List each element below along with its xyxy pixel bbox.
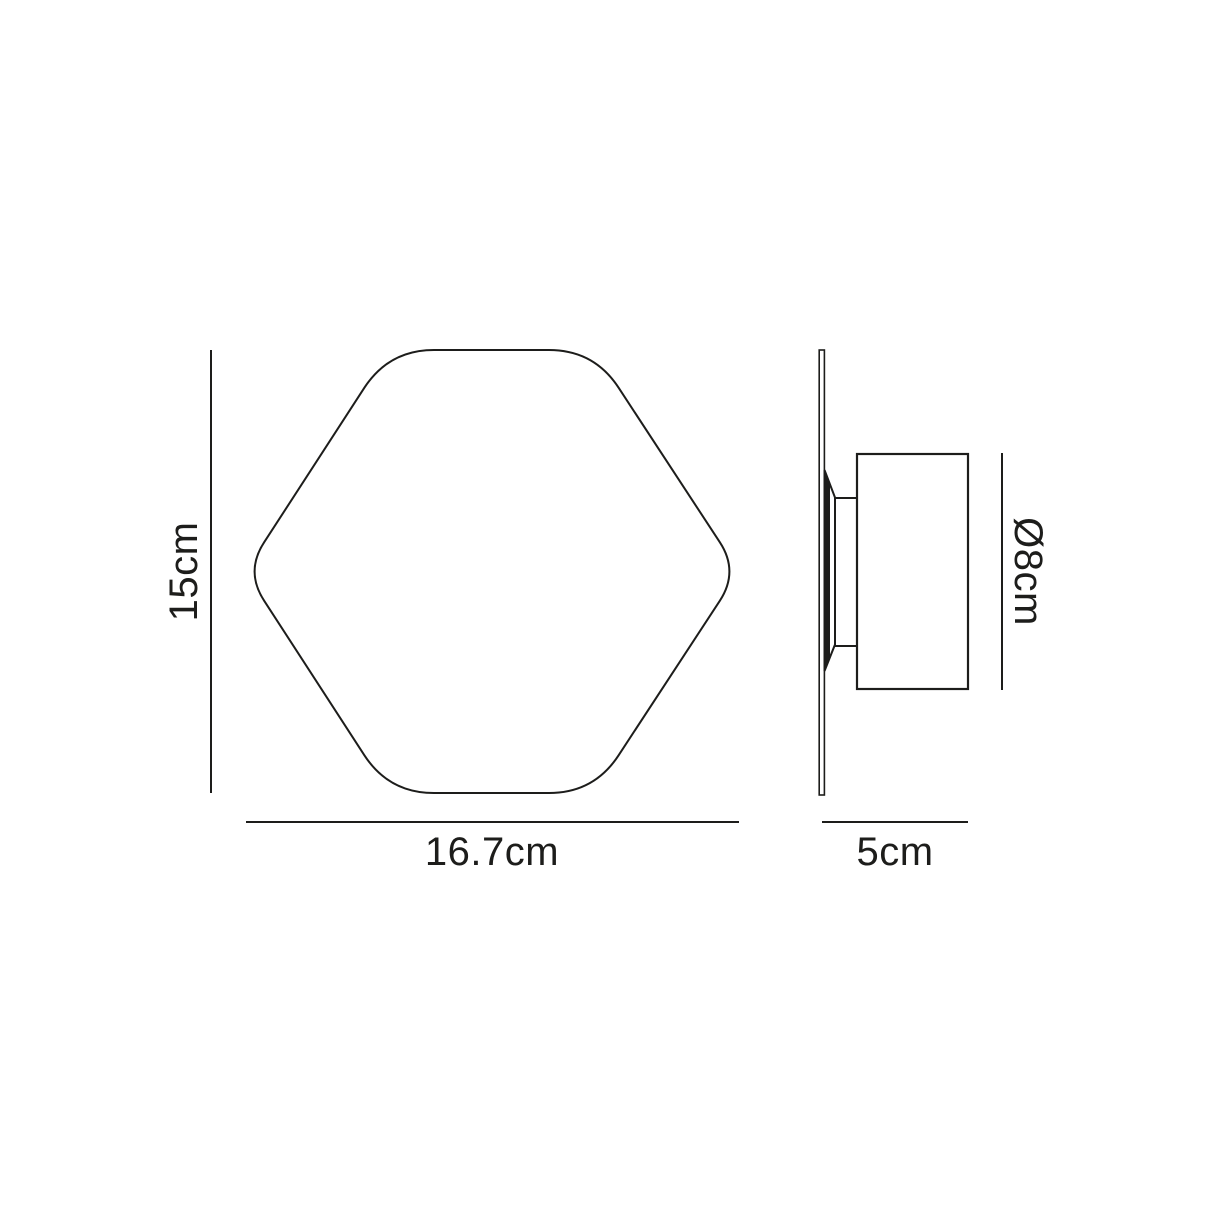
height-label: 15cm [162, 522, 206, 622]
depth-label: 5cm [856, 830, 933, 874]
diameter-label: Ø8cm [1006, 517, 1050, 626]
side-view-mount-cone-shadow [825, 470, 831, 671]
side-view-neck [835, 498, 857, 646]
diagram-canvas: 15cm 16.7cm Ø8cm 5cm [0, 0, 1214, 1214]
side-view-cylinder-body [857, 454, 968, 689]
dimension-diagram: 15cm 16.7cm Ø8cm 5cm [0, 0, 1214, 1214]
side-view [819, 350, 1002, 822]
front-view-hexagon-outline [255, 350, 730, 793]
front-view [211, 350, 739, 822]
width-label: 16.7cm [425, 830, 559, 874]
